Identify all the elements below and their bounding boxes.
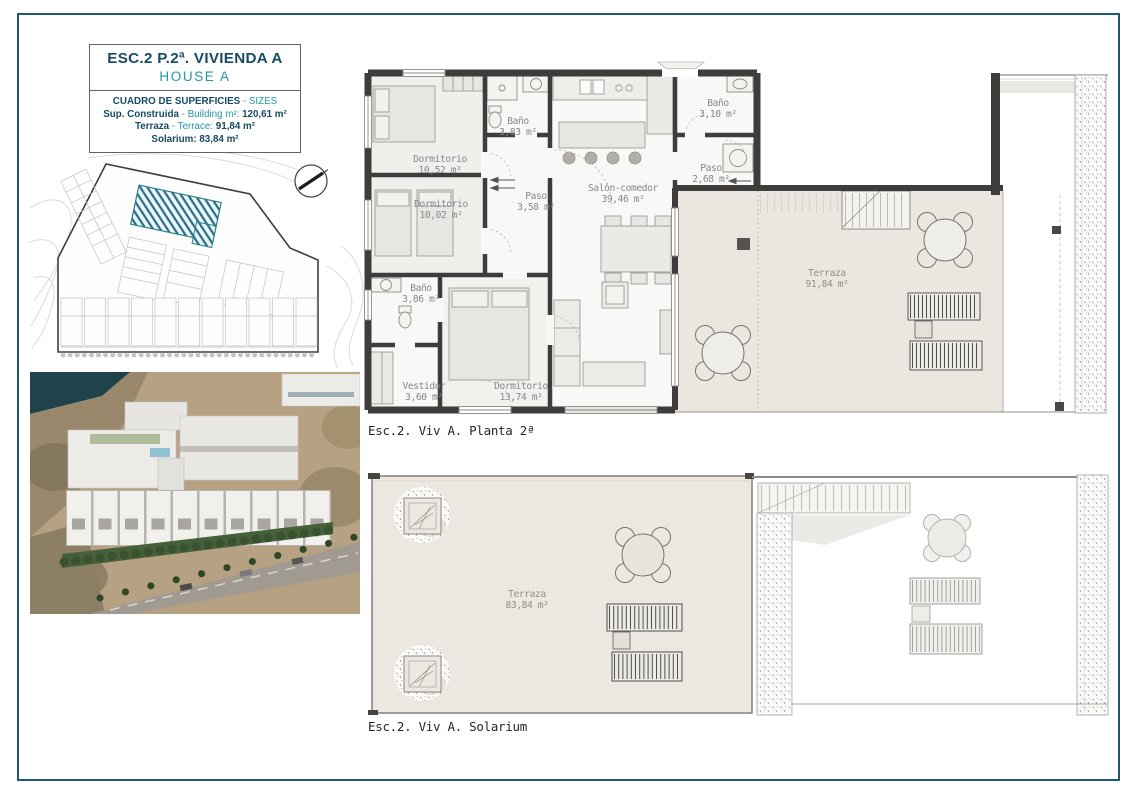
site-plan-sketch [28, 148, 373, 370]
floor-plan-solarium: Terraza 83,84 m² [355, 473, 1115, 718]
surface-row-built: Sup. Construida - Building m²: 120,61 m² [92, 109, 298, 122]
room-label-terraza: Terraza [808, 268, 846, 279]
room-area-paso-1: 3,58 m² [517, 202, 555, 213]
site-row-houses [61, 298, 317, 346]
room-label-bano-3: Baño [410, 283, 432, 294]
room-label-salon: Salón-comedor [588, 182, 659, 194]
sheet-subtitle: HOUSE A [94, 69, 296, 84]
surface-row-terrace: Terraza - Terrace: 91,84 m² [92, 121, 298, 134]
room-area-dormitorio-3: 13,74 m² [499, 392, 542, 403]
room-label-paso-2: Paso [700, 163, 722, 174]
room-area-terraza: 91,84 m² [805, 279, 848, 290]
room-area-vestidor: 3,60 m² [405, 392, 443, 403]
room-label-bano-1: Baño [507, 116, 529, 127]
surface-table-header: CUADRO DE SUPERFICIES - SIZES [92, 96, 298, 109]
plan-sheet: ESC.2 P.2ª. VIVIENDA A HOUSE A CUADRO DE… [0, 0, 1133, 800]
surface-table: CUADRO DE SUPERFICIES - SIZES Sup. Const… [89, 91, 301, 153]
room-area-bano-2: 3,10 m² [699, 109, 737, 120]
aerial-photo [30, 372, 360, 614]
room-label-paso-1: Paso [525, 191, 547, 202]
solarium-area-terraza: 83,84 m² [505, 600, 548, 611]
title-block-header: ESC.2 P.2ª. VIVIENDA A HOUSE A [89, 44, 301, 91]
terrace-table-1 [918, 213, 973, 268]
terrace-drain [737, 238, 750, 250]
floor-plan-planta2: Dormitorio 10,52 m² Baño 3,83 m² Dormito… [355, 60, 1115, 432]
title-block: ESC.2 P.2ª. VIVIENDA A HOUSE A CUADRO DE… [89, 44, 301, 153]
planter-strip-right [1075, 75, 1106, 413]
bed-dormitorio-3 [449, 288, 529, 380]
room-label-vestidor: Vestidor [402, 381, 446, 392]
surface-row-solarium: Solarium: 83,84 m² [92, 134, 298, 147]
dining-table [601, 216, 671, 284]
room-label-dormitorio-1: Dormitorio [413, 154, 467, 165]
caption-planta2: Esc.2. Viv A. Planta 2ª [368, 423, 534, 438]
room-area-bano-1: 3,83 m² [499, 127, 537, 138]
room-area-dormitorio-2: 10,02 m² [419, 210, 462, 221]
neighbour-solarium [752, 475, 1108, 715]
room-area-dormitorio-1: 10,52 m² [418, 165, 461, 176]
room-label-dormitorio-3: Dormitorio [494, 381, 548, 392]
room-label-dormitorio-2: Dormitorio [414, 199, 468, 210]
room-area-salon: 39,46 m² [601, 194, 644, 205]
planter-top-left [394, 487, 450, 543]
caption-solarium: Esc.2. Viv A. Solarium [368, 719, 527, 734]
north-compass-icon [295, 165, 328, 197]
planter-bottom-left [394, 645, 450, 701]
terrace-table-2 [696, 326, 751, 381]
solarium-label-terraza: Terraza [508, 589, 546, 600]
solarium-table [616, 528, 671, 583]
room-area-bano-3: 3,86 m² [402, 294, 440, 305]
sheet-title: ESC.2 P.2ª. VIVIENDA A [94, 50, 296, 67]
room-area-paso-2: 2,68 m² [692, 174, 730, 185]
room-label-bano-2: Baño [707, 98, 729, 109]
vestidor-wardrobe [371, 352, 393, 404]
